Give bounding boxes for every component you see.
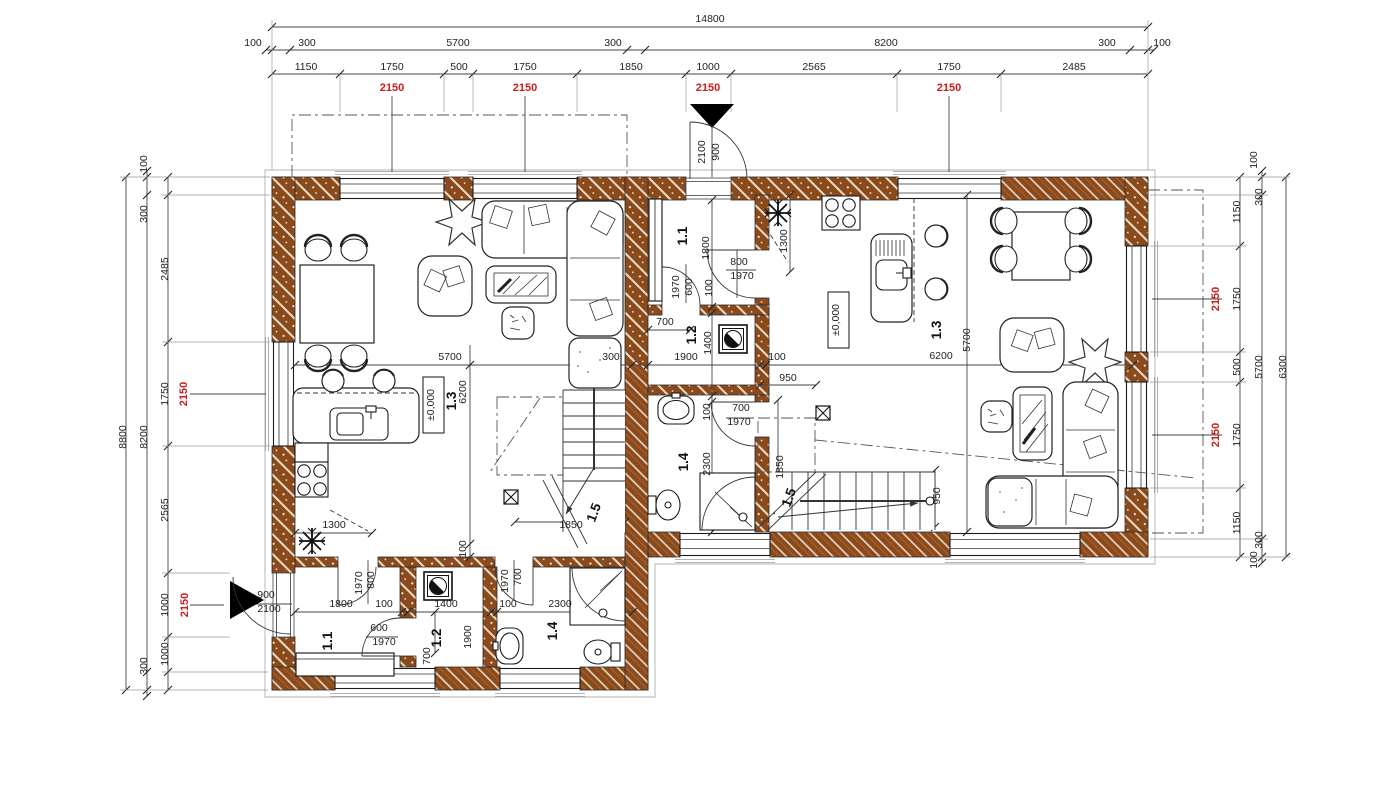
dim-label: 1850: [559, 519, 583, 531]
room-label-right-1-3: 1.3: [929, 320, 944, 339]
dim-label: 1800: [329, 598, 353, 610]
entry-door-height-label: 2100: [257, 603, 281, 615]
pouf-right: [981, 401, 1012, 432]
dim-label: 1970: [499, 569, 511, 593]
dim-label: 700: [732, 402, 750, 414]
shower-right: [700, 473, 755, 530]
dim-label: 1750: [380, 61, 404, 73]
dim-label: 6300: [1277, 355, 1289, 379]
dim-label: 1970: [730, 270, 754, 282]
coffee-table-left: [486, 266, 556, 303]
pouf-left: [502, 307, 534, 339]
room-label-left-1-2: 1.2: [429, 629, 444, 648]
dim-label: 100: [375, 598, 393, 610]
dim-label: 1400: [702, 331, 714, 355]
dim-label: 700: [512, 568, 524, 586]
floor-plan-page: 1480010030057003008200300100115017505001…: [0, 0, 1400, 787]
sill-height-label: 2150: [179, 593, 191, 617]
room-label-right-1-1: 1.1: [675, 226, 690, 245]
dim-label: 5700: [438, 351, 462, 363]
dim-label: 5700: [1253, 355, 1265, 379]
chair-icon: [341, 345, 367, 371]
dim-label: 1850: [774, 455, 786, 479]
chair-icon: [305, 235, 331, 261]
dim-label: 500: [1231, 358, 1243, 376]
dining-table-right: [1012, 212, 1070, 280]
dim-label: 1300: [778, 229, 790, 253]
level-marker-right: ±0,000: [830, 304, 842, 336]
shaft-symbol-icon: [816, 406, 830, 420]
bar-stool-icon: [373, 370, 395, 392]
dim-label: 1970: [670, 275, 682, 299]
bar-stool-icon: [925, 278, 947, 300]
total-width-label: 14800: [695, 13, 724, 25]
sill-height-label: 2150: [1210, 423, 1222, 447]
dim-label: 700: [656, 316, 674, 328]
toilet-left: [584, 640, 620, 664]
dim-label: 950: [779, 372, 797, 384]
dim-label: 5700: [446, 37, 470, 49]
dim-label: 300: [602, 351, 620, 363]
sill-height-label: 2150: [696, 82, 720, 94]
dim-label: 1150: [1231, 512, 1243, 535]
wc-symbol-left: [424, 572, 452, 600]
dim-label: 950: [931, 487, 943, 505]
dim-label: 500: [450, 61, 468, 73]
chair-icon: [341, 235, 367, 261]
dim-label: 1750: [513, 61, 537, 73]
dim-label: 100: [703, 279, 715, 297]
chair-icon: [305, 345, 331, 371]
dim-label: 1800: [700, 236, 712, 260]
dim-label: 1150: [1231, 201, 1243, 224]
dining-table-left: [300, 265, 374, 343]
dim-label: 700: [421, 647, 433, 665]
dim-label: 100: [457, 540, 469, 558]
dim-label: 300: [1253, 188, 1265, 206]
dim-label: 1970: [372, 636, 396, 648]
dim-label: 2565: [159, 498, 171, 522]
dim-label: 2485: [1062, 61, 1086, 73]
dim-label: 1970: [353, 571, 365, 595]
stove-right: [822, 196, 860, 230]
dim-label: 1750: [1231, 423, 1243, 447]
dim-label: 100: [1248, 151, 1260, 169]
dim-label: 6200: [929, 350, 953, 362]
dim-label: 1970: [727, 416, 751, 428]
dim-label: 300: [604, 37, 622, 49]
dim-label: 8200: [874, 37, 898, 49]
room-label-left-1-4: 1.4: [545, 621, 560, 640]
shower-left: [570, 568, 625, 625]
dim-label: 300: [138, 657, 150, 675]
dim-label: 1850: [619, 61, 643, 73]
dim-label: 2300: [701, 452, 713, 476]
dim-label: 8800: [117, 425, 129, 449]
dim-label: 1900: [462, 625, 474, 649]
chair-icon: [991, 208, 1017, 234]
dim-label: 100: [768, 351, 786, 363]
dim-label: 1900: [674, 351, 698, 363]
sill-height-label: 2150: [513, 82, 537, 94]
dim-label: 800: [365, 571, 377, 589]
dim-label: 2300: [548, 598, 572, 610]
dim-label: 300: [1253, 531, 1265, 549]
dim-label: 300: [1098, 37, 1116, 49]
dim-label: 1000: [159, 593, 171, 617]
dim-label: 2485: [159, 257, 171, 281]
shaft-symbol-icon: [504, 490, 518, 504]
entry-door-height-label: 2100: [696, 140, 708, 164]
armchair-right: [1000, 318, 1064, 372]
entry-door-width-label: 900: [710, 143, 722, 161]
dim-label: 100: [1153, 37, 1171, 49]
room-label-left-1-1: 1.1: [320, 631, 335, 650]
armchair-left: [418, 256, 472, 316]
dim-label: 100: [244, 37, 262, 49]
room-label-left-1-3: 1.3: [444, 391, 459, 410]
sill-height-label: 2150: [380, 82, 404, 94]
washbasin-left: [493, 628, 523, 664]
dim-label: 8200: [138, 425, 150, 449]
wardrobe-right: [649, 199, 662, 301]
washbasin-right: [658, 393, 694, 424]
room-label-right-1-4: 1.4: [676, 452, 691, 471]
dim-label: 1000: [159, 642, 171, 666]
dim-label: 1150: [295, 61, 318, 73]
chair-icon: [1065, 246, 1091, 272]
dim-label: 100: [1248, 551, 1260, 569]
dim-label: 5700: [961, 328, 973, 352]
room-label-right-1-2: 1.2: [684, 326, 699, 345]
dim-label: 600: [370, 622, 388, 634]
bar-stool-icon: [925, 225, 947, 247]
dim-label: 300: [138, 205, 150, 223]
wc-symbol-right: [719, 325, 747, 353]
dim-label: 1750: [1231, 287, 1243, 311]
sill-height-label: 2150: [937, 82, 961, 94]
coffee-table-right: [1013, 387, 1052, 460]
dim-label: 300: [298, 37, 316, 49]
entry-door-opening-top: [686, 178, 731, 199]
stove-left: [295, 462, 328, 497]
chair-icon: [991, 246, 1017, 272]
level-marker-left: ±0,000: [425, 389, 437, 421]
bar-stool-icon: [322, 370, 344, 392]
dim-label: 2565: [802, 61, 826, 73]
floor-plan-canvas: 1480010030057003008200300100115017505001…: [0, 0, 1400, 787]
sill-height-label: 2150: [1210, 287, 1222, 311]
dim-label: 800: [730, 256, 748, 268]
dim-label: 1750: [159, 382, 171, 406]
dim-label: 1400: [434, 598, 458, 610]
chair-icon: [1065, 208, 1091, 234]
entry-door-width-label: 900: [257, 589, 275, 601]
dim-label: 1000: [696, 61, 720, 73]
dim-label: 600: [683, 278, 695, 296]
dim-label: 100: [499, 598, 517, 610]
sill-height-label: 2150: [178, 382, 190, 406]
dim-label: 100: [138, 155, 150, 173]
dim-label: 100: [701, 403, 713, 421]
dim-label: 1750: [937, 61, 961, 73]
dim-label: 1300: [322, 519, 346, 531]
